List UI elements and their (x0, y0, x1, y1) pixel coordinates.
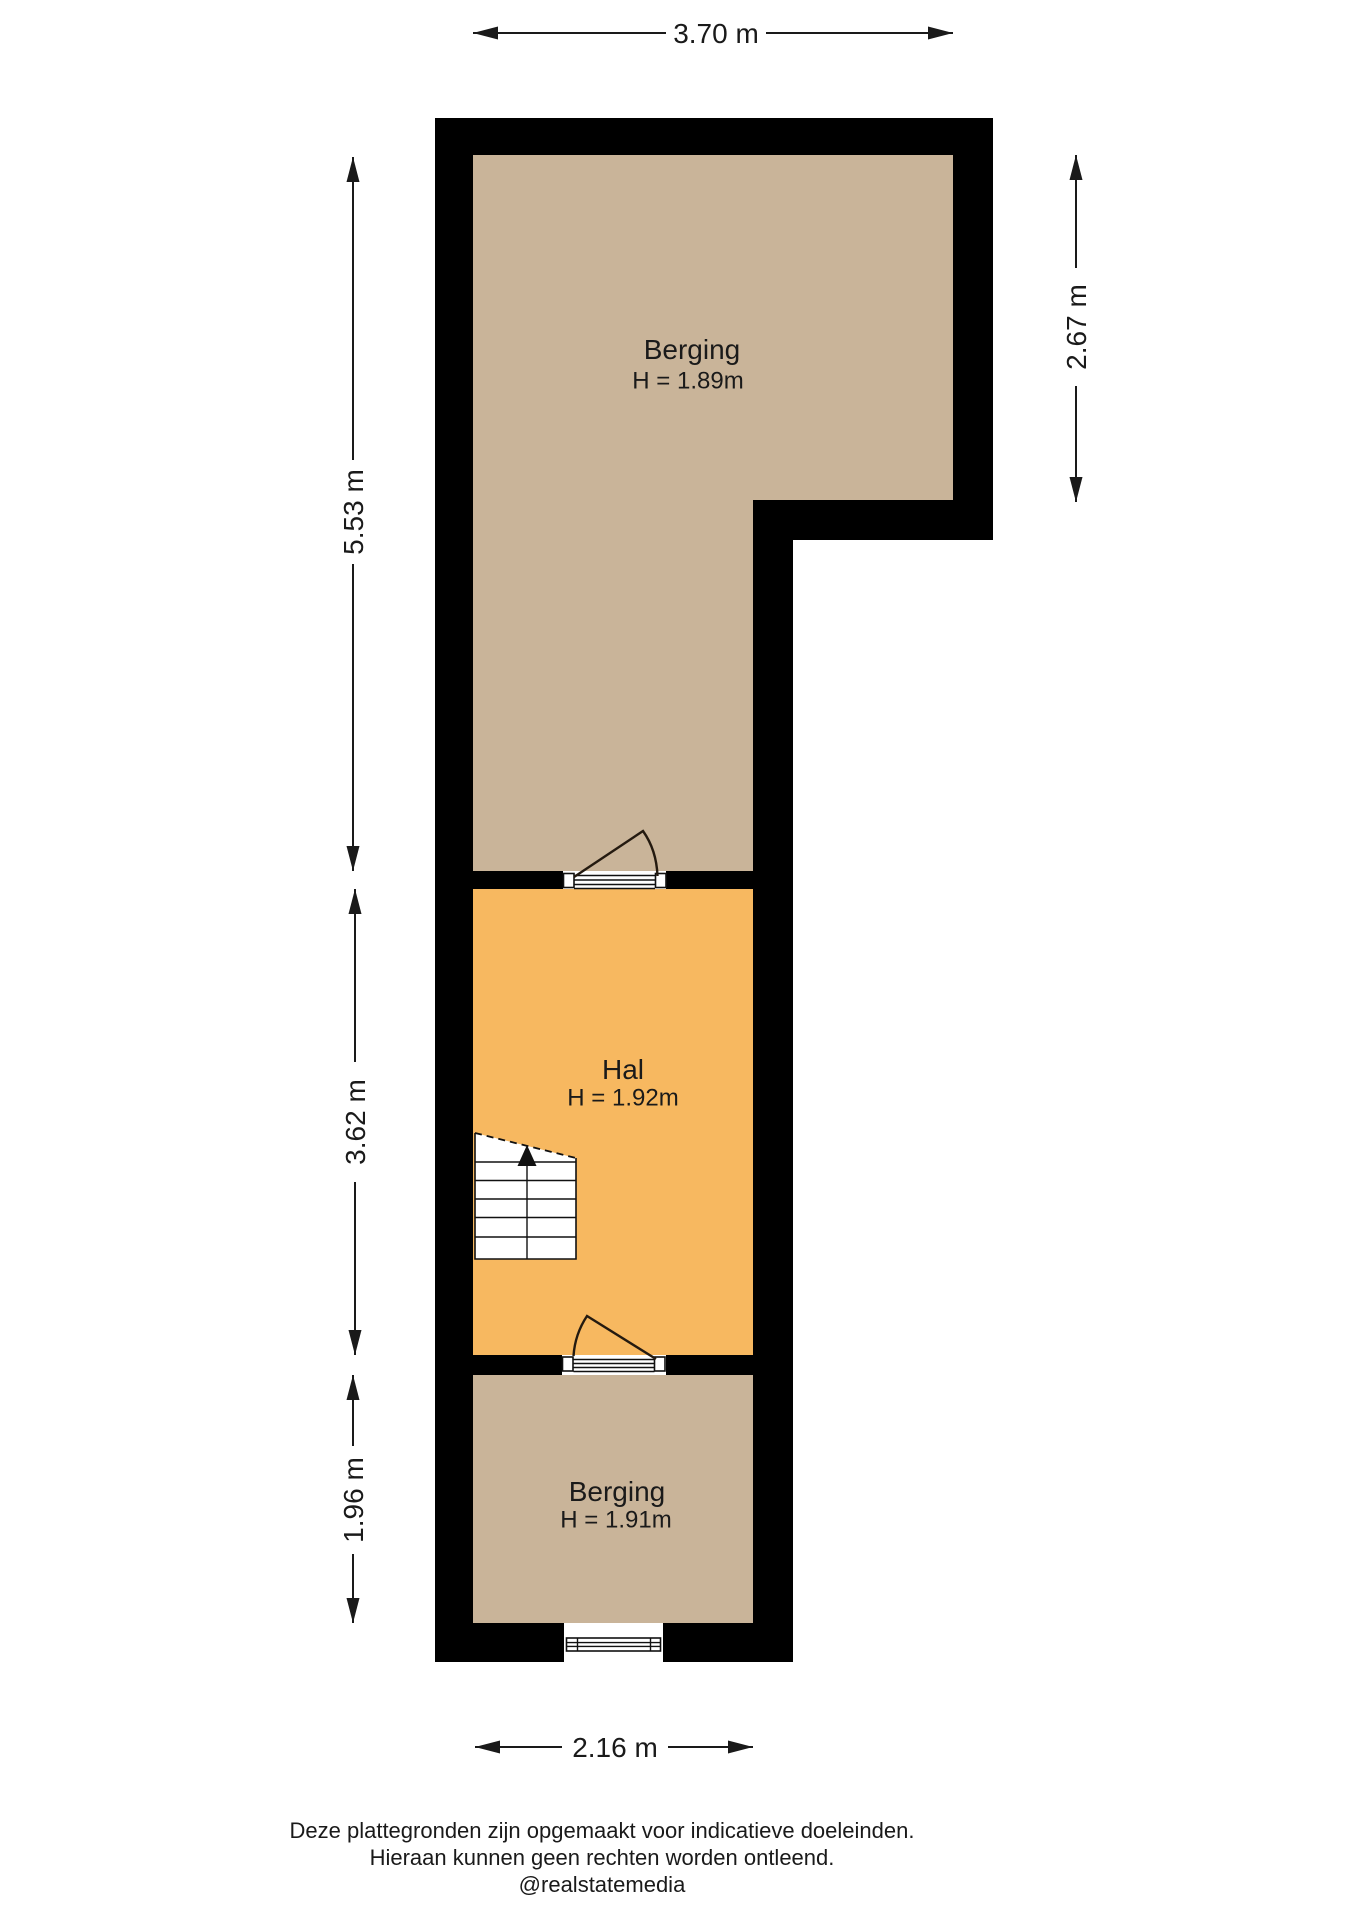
arrow-down-icon (1070, 477, 1083, 502)
arrow-left-icon (473, 27, 498, 40)
room-label-berging-top: Berging (644, 334, 741, 365)
footer: Deze plattegronden zijn opgemaakt voor i… (290, 1818, 915, 1897)
window-frame (567, 1638, 661, 1651)
dimension-left-lower-label: 1.96 m (338, 1457, 369, 1543)
dimension-left-middle-label: 3.62 m (340, 1079, 371, 1165)
arrow-left-icon (475, 1741, 500, 1754)
arrow-up-icon (349, 889, 362, 914)
door-top-jamb (564, 874, 575, 888)
floorplan-page: Berging H = 1.89m Hal H = 1.92m Berging … (0, 0, 1358, 1920)
arrow-down-icon (349, 1330, 362, 1355)
room-label-hal: Hal (602, 1054, 644, 1085)
dimension-bottom-label: 2.16 m (572, 1732, 658, 1763)
footer-line-1: Deze plattegronden zijn opgemaakt voor i… (290, 1818, 915, 1843)
footer-line-2: Hieraan kunnen geen rechten worden ontle… (370, 1845, 835, 1870)
door-bottom-jamb (655, 1357, 666, 1371)
arrow-down-icon (347, 1598, 360, 1623)
dimension-top-label: 3.70 m (673, 18, 759, 49)
dimension-right-label: 2.67 m (1061, 284, 1092, 370)
arrow-down-icon (347, 846, 360, 871)
window-bottom-icon (564, 1623, 663, 1662)
room-height-hal: H = 1.92m (567, 1084, 678, 1111)
door-bottom-jamb (563, 1357, 574, 1371)
dimension-left-upper-label: 5.53 m (338, 469, 369, 555)
dimension-left-middle: 3.62 m (340, 889, 371, 1355)
floorplan-drawing: Berging H = 1.89m Hal H = 1.92m Berging … (0, 0, 1358, 1920)
dimension-top: 3.70 m (473, 18, 953, 49)
dimension-bottom: 2.16 m (475, 1732, 753, 1763)
footer-line-3: @realstatemedia (519, 1872, 686, 1897)
arrow-right-icon (928, 27, 953, 40)
dimension-right: 2.67 m (1061, 155, 1092, 502)
arrow-right-icon (728, 1741, 753, 1754)
dimension-left-upper: 5.53 m (338, 157, 369, 871)
arrow-up-icon (1070, 155, 1083, 180)
arrow-up-icon (347, 1375, 360, 1400)
room-label-berging-bottom: Berging (569, 1476, 666, 1507)
room-hal-floor (473, 889, 753, 1355)
dimension-left-lower: 1.96 m (338, 1375, 369, 1623)
room-height-berging-top: H = 1.89m (632, 367, 743, 394)
arrow-up-icon (347, 157, 360, 182)
room-height-berging-bottom: H = 1.91m (560, 1506, 671, 1533)
